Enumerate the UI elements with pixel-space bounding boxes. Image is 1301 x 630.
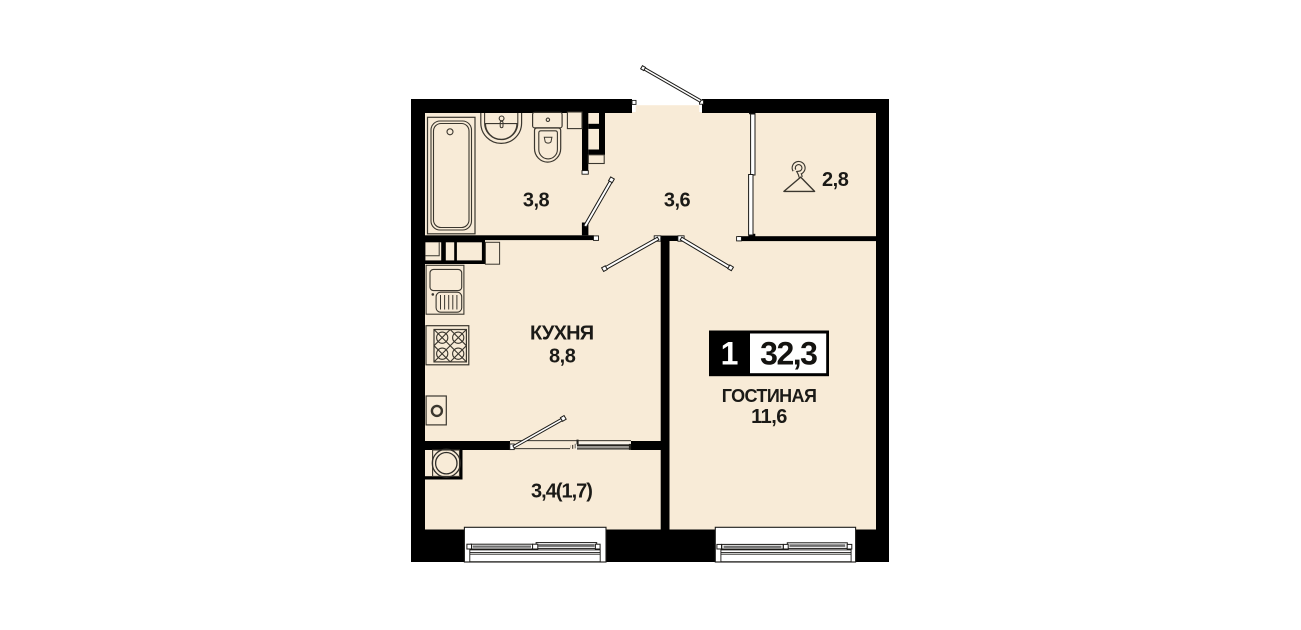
svg-text:КУХНЯ: КУХНЯ	[530, 322, 594, 344]
svg-text:ГОСТИНАЯ: ГОСТИНАЯ	[722, 386, 817, 406]
svg-text:11,6: 11,6	[751, 406, 787, 428]
svg-text:2,8: 2,8	[822, 169, 849, 191]
svg-text:32,3: 32,3	[760, 335, 817, 371]
svg-text:8,8: 8,8	[549, 345, 576, 367]
svg-text:1: 1	[721, 335, 739, 371]
svg-text:3,6: 3,6	[664, 190, 691, 212]
svg-text:3,4(1,7): 3,4(1,7)	[531, 480, 592, 502]
svg-text:3,8: 3,8	[523, 190, 550, 212]
